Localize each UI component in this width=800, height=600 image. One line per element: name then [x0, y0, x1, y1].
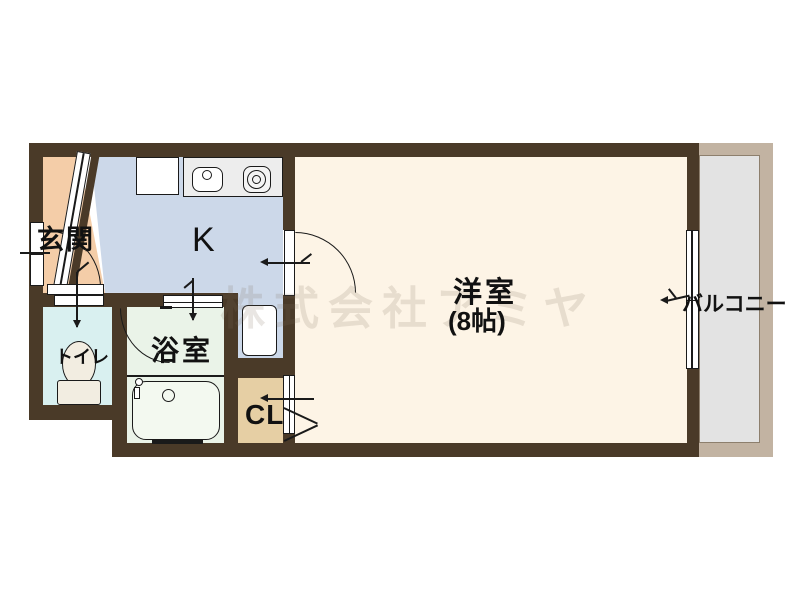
closet-label: CL: [245, 399, 284, 431]
balcony-leader-head: [660, 296, 668, 304]
bathtub-drain: [162, 389, 175, 402]
bathtub-tap-pipe: [134, 387, 140, 399]
closet-door-line: [289, 376, 290, 433]
kitchen-faucet: [202, 170, 212, 180]
wall-westernroom-left-top: [283, 157, 295, 230]
toilet-label: トイレ: [55, 343, 109, 369]
toilet-arrow-line: [76, 272, 78, 327]
wall-right-bottom: [687, 369, 699, 457]
company-watermark: 株式会社アミヤ: [220, 272, 597, 337]
bathroom-door-hinge-mark: [160, 306, 172, 309]
kitchen-label: K: [192, 221, 215, 260]
wall-top: [29, 143, 699, 157]
wall-bottom: [112, 443, 699, 457]
bathtub-rim-bar: [152, 440, 203, 444]
wall-left: [29, 157, 43, 420]
genkan-step-lower: [54, 295, 104, 306]
toilet-arrow-head: [73, 320, 81, 328]
westernroom-arrow-line: [266, 262, 310, 264]
westernroom-arrow-head: [260, 258, 268, 266]
balcony-label: バルコニー: [682, 288, 787, 318]
bathroom-label: 浴室: [151, 329, 213, 369]
bathtub-tap: [135, 378, 143, 386]
bathroom-arrow-head: [189, 313, 197, 321]
refrigerator-space: [136, 157, 179, 195]
wall-above-closet: [238, 358, 283, 378]
stove-burner-inner: [252, 175, 261, 184]
wall-right-top: [687, 143, 699, 230]
bathtub: [132, 381, 220, 440]
wall-toilet-bottom: [29, 405, 114, 420]
floorplan-canvas: 株式会社アミヤ 玄関 K トイレ 浴室 CL 洋室 (8帖) バルコニー: [0, 0, 800, 600]
toilet-tank: [57, 380, 101, 405]
western-room-size-label: (8帖): [448, 301, 506, 338]
genkan-label: 玄関: [37, 218, 95, 257]
closet-door: [283, 375, 295, 434]
bathroom-divider-line: [127, 375, 224, 377]
